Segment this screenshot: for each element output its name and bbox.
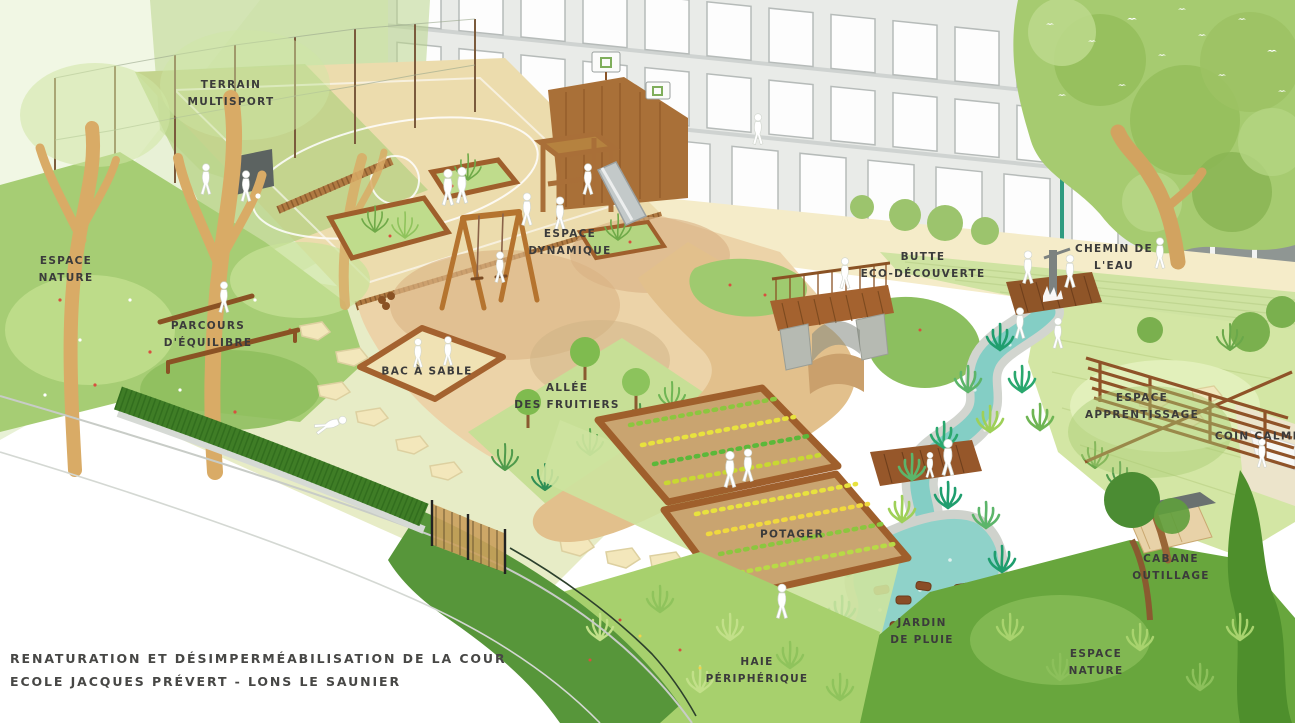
plan-title-line2: ECOLE JACQUES PRÉVERT - LONS LE SAUNIER — [10, 671, 507, 694]
plan-title-line1: RENATURATION ET DÉSIMPERMÉABILISATION DE… — [10, 648, 507, 671]
schoolyard-plan-illustration: TERRAINMULTISPORT ESPACENATURE PARCOURSD… — [0, 0, 1295, 723]
plan-title: RENATURATION ET DÉSIMPERMÉABILISATION DE… — [10, 648, 507, 693]
plan-drawing — [0, 0, 1295, 723]
